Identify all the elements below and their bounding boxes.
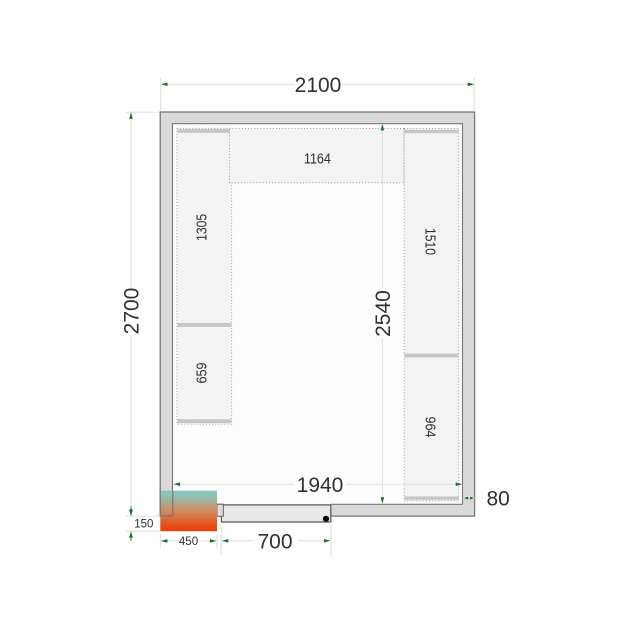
svg-text:2700: 2700: [121, 288, 144, 335]
svg-text:1305: 1305: [194, 214, 210, 241]
svg-text:150: 150: [134, 519, 153, 531]
svg-text:80: 80: [487, 488, 510, 511]
svg-text:2540: 2540: [372, 290, 395, 337]
svg-text:2100: 2100: [295, 74, 342, 97]
svg-text:1510: 1510: [422, 228, 438, 255]
svg-text:1164: 1164: [304, 152, 331, 168]
svg-text:964: 964: [422, 417, 438, 438]
svg-text:1940: 1940: [297, 474, 344, 497]
svg-text:700: 700: [257, 530, 292, 553]
svg-text:659: 659: [194, 363, 210, 384]
svg-text:450: 450: [179, 536, 198, 548]
